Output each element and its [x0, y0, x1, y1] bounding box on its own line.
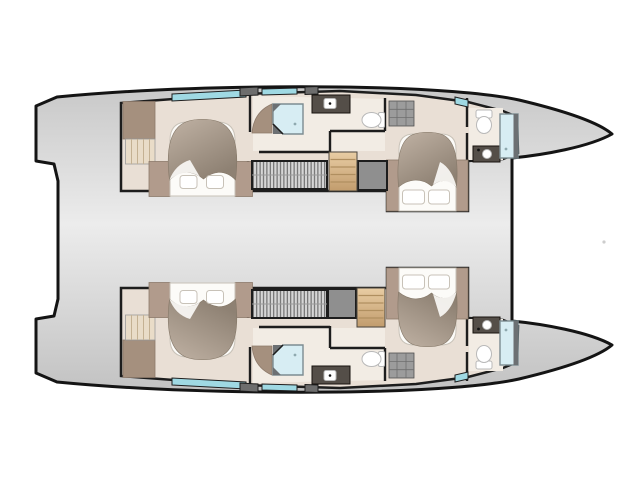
stray-mark [602, 240, 605, 243]
hull-top-companionway-stairs [329, 152, 357, 191]
catamaran-floor-plan [0, 0, 640, 479]
floor-plan-canvas [0, 0, 640, 479]
hull-bottom-companionway-stairs [357, 288, 385, 327]
stairs-body [357, 288, 385, 327]
hull-top-storage-block [358, 161, 387, 190]
stairs-body [329, 152, 357, 191]
hull-bottom-storage-block [328, 289, 356, 318]
